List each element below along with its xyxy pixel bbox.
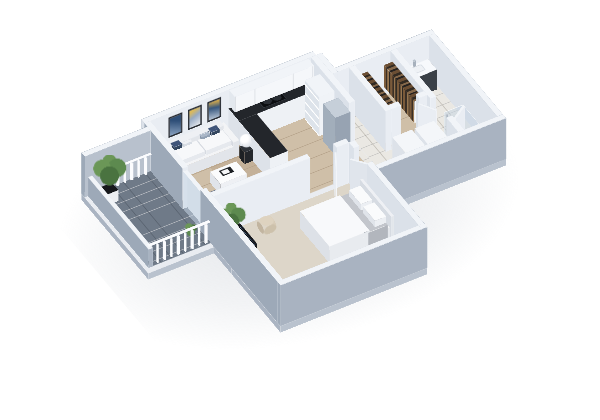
balcony-parapet-left-face (149, 248, 153, 269)
wall-living-bedroom-b-face (337, 142, 349, 188)
vanity-faucet-face (414, 61, 416, 67)
floorplan-stage (0, 0, 600, 420)
